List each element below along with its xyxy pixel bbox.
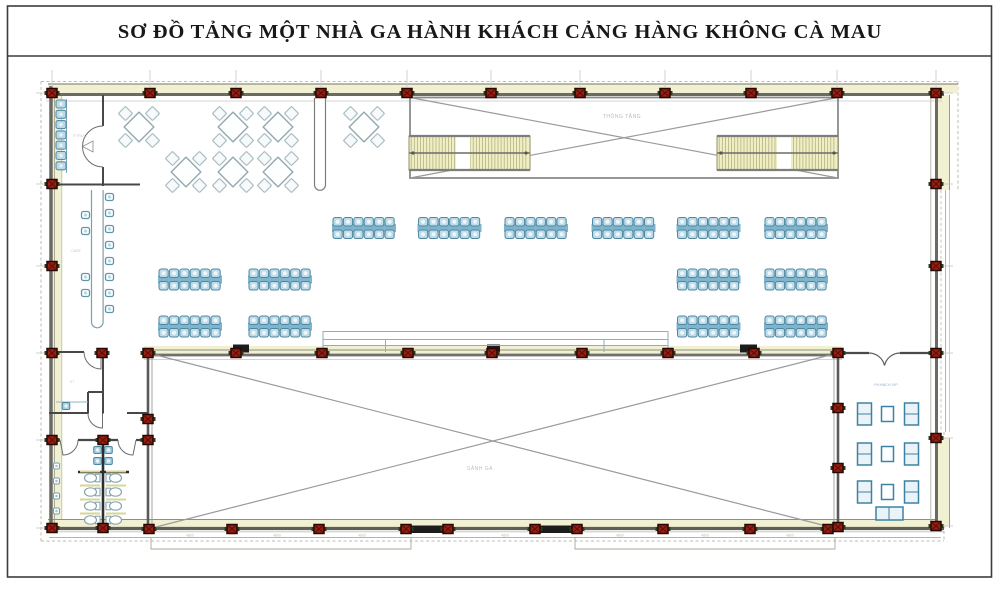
svg-text:4800: 4800 (273, 534, 281, 538)
svg-text:4800: 4800 (186, 534, 194, 538)
svg-text:SƠ ĐỒ TẢNG MỘT NHÀ GA HÀNH KHÁ: SƠ ĐỒ TẢNG MỘT NHÀ GA HÀNH KHÁCH CẢNG HÀ… (118, 19, 882, 43)
svg-text:4800: 4800 (616, 534, 624, 538)
svg-text:KT: KT (70, 380, 74, 384)
svg-text:SẢNH GA: SẢNH GA (467, 465, 493, 472)
svg-text:CAFE: CAFE (71, 249, 81, 253)
svg-text:4800: 4800 (358, 534, 366, 538)
svg-text:4800: 4800 (786, 534, 794, 538)
svg-text:4800: 4800 (701, 534, 709, 538)
svg-text:4800: 4800 (501, 534, 509, 538)
svg-text:P.TRỰC: P.TRỰC (73, 134, 87, 138)
svg-text:P.KHÁCH VIP: P.KHÁCH VIP (874, 383, 898, 387)
svg-text:THÔNG TẦNG: THÔNG TẦNG (603, 113, 641, 120)
